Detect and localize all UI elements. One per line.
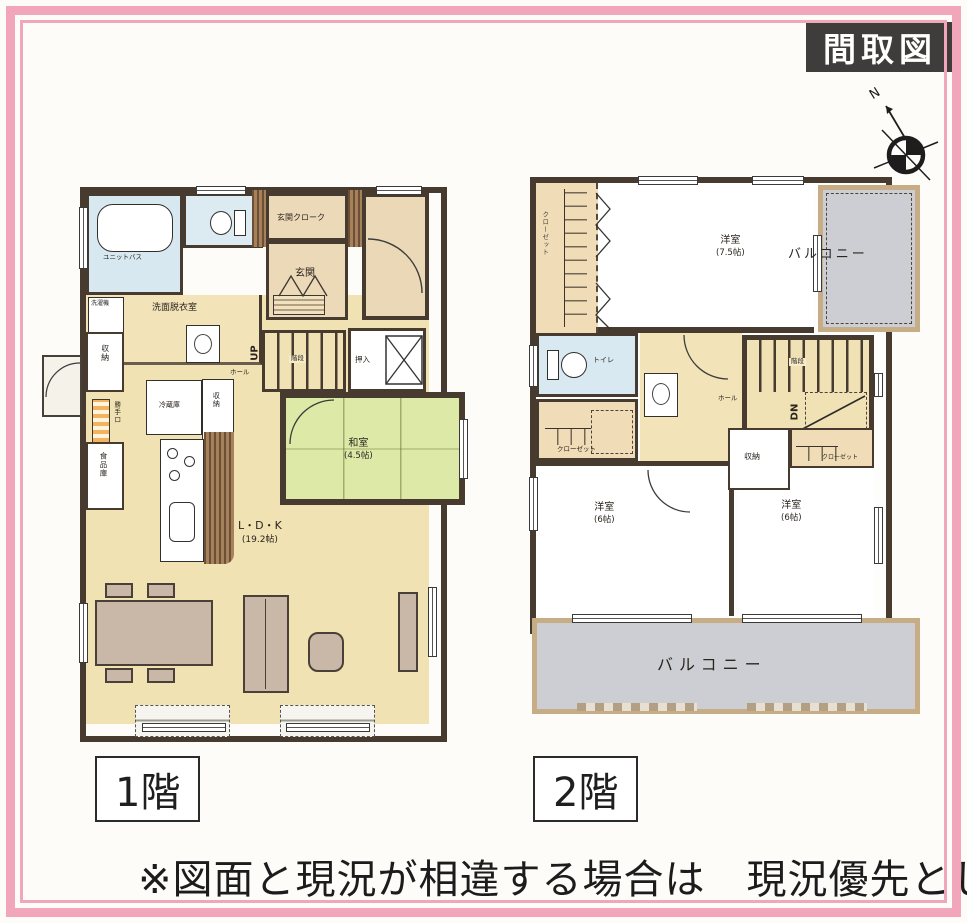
bathroom-label: ユニットバス: [103, 254, 142, 262]
closet-mid: クローゼット: [536, 399, 638, 461]
window: [572, 614, 692, 623]
wash-basin2: [644, 373, 678, 417]
kitchen-counter: [160, 439, 204, 562]
closet-mid-dashed: [591, 410, 633, 454]
hall2-door-arc: [684, 335, 728, 379]
window: [196, 186, 246, 195]
title-badge: 間取図: [806, 22, 954, 72]
side-door: [874, 373, 883, 397]
window: [286, 723, 370, 732]
window: [79, 603, 88, 663]
back-door-panel: [92, 399, 110, 443]
balcony-top-label: バルコニー: [788, 247, 868, 263]
bedroom-75-label: 洋室 (7.5帖): [716, 235, 745, 259]
ldk-size: (19.2帖): [242, 535, 278, 545]
washing-machine: 洗濯機: [88, 297, 124, 333]
window: [752, 176, 804, 185]
window: [638, 176, 698, 185]
dining-chair: [105, 583, 133, 598]
bedroom-6l: 洋室 (6帖): [536, 461, 734, 616]
cloak-cabinet-left: [252, 190, 266, 247]
disclaimer-note: ※図面と現況が相違する場合は 現況優先とし: [138, 856, 967, 904]
window: [742, 614, 862, 623]
window: [529, 345, 538, 387]
toilet2-room: トイレ: [536, 333, 638, 397]
entrance-door-arc: [368, 239, 424, 295]
balcony-railing: [577, 703, 697, 711]
dining-chair: [105, 668, 133, 683]
stove-burner: [184, 456, 195, 467]
closet-left-label: クローゼット: [540, 211, 548, 256]
window: [376, 186, 422, 195]
toilet1-bowl: [210, 211, 232, 235]
toilet2-label: トイレ: [593, 356, 614, 364]
sofa: [243, 595, 289, 693]
refrigerator: 冷蔵庫: [146, 380, 202, 435]
bedroom-6l-size: (6帖): [594, 515, 615, 525]
washitsu-size: (4.5帖): [344, 451, 373, 461]
hall2-label: ホール: [718, 395, 738, 403]
bedroom-75-size: (7.5帖): [716, 248, 745, 258]
floor1-name-box: 1階: [95, 756, 200, 822]
washitsu: 和室 (4.5帖): [280, 392, 465, 505]
terrace-step: [135, 705, 230, 737]
washitsu-label: 和室 (4.5帖): [344, 438, 373, 462]
entrance-cloak: 玄関クローク: [266, 193, 348, 241]
oshiire-x-mark: [385, 335, 423, 385]
bedroom-6l-name: 洋室: [594, 502, 614, 513]
closet-right: クローゼット: [790, 428, 874, 468]
refrigerator-label: 冷蔵庫: [159, 401, 180, 409]
bedroom-75-name: 洋室: [720, 235, 740, 246]
bedroom-6l-label: 洋室 (6帖): [594, 502, 615, 526]
washitsu-door-arc: [290, 400, 334, 444]
cloak-cabinet-right: [348, 190, 362, 247]
window: [459, 419, 468, 479]
entrance-cloak-label: 玄関クローク: [277, 213, 325, 223]
closet-mid-label: クローゼット: [557, 446, 596, 454]
storage-left-label: 収納: [100, 344, 110, 362]
kitchen-island: [204, 432, 234, 564]
dining-chair: [147, 668, 175, 683]
toilet2-tank: [547, 350, 559, 380]
balcony-top-door: [813, 235, 822, 292]
window: [529, 477, 538, 531]
pantry-label: 食品庫: [99, 452, 108, 478]
stove-burner: [167, 448, 178, 459]
floor1-plan: ユニットバス 玄関クローク 玄関 洗面脱衣室 洗濯機 ホール 収納 勝手口: [80, 187, 472, 747]
closet-right-label: クローゼット: [822, 454, 858, 461]
basin2-bowl: [652, 383, 670, 405]
closet-left: クローゼット: [536, 183, 598, 333]
washroom-label: 洗面脱衣室: [152, 303, 197, 314]
closet-left-bifold: [594, 191, 612, 331]
hall1-label: ホール: [230, 369, 250, 377]
floor2-plan: 洋室 (7.5帖) クローゼット バルコニー トイレ クローゼット ホール: [530, 177, 922, 722]
window: [79, 207, 88, 269]
bathroom: ユニットバス: [86, 193, 183, 295]
terrace-step: [280, 705, 375, 737]
back-door-landing: [42, 355, 82, 417]
toilet2-bowl: [561, 352, 587, 378]
bathtub: [97, 204, 173, 252]
window: [142, 723, 226, 732]
pantry: 食品庫: [86, 442, 124, 510]
compass-north-label: N: [867, 85, 883, 103]
stairs1-label: 階段: [289, 355, 306, 363]
balcony-railing: [747, 703, 867, 711]
dining-chair: [147, 583, 175, 598]
storage-2f-label: 収納: [744, 452, 760, 462]
bedroom-6r-name: 洋室: [781, 500, 801, 511]
tv-board: [398, 592, 418, 672]
shoe-cabinet: [273, 295, 325, 315]
bedroom-6l-door-arc: [648, 470, 690, 512]
sofa-seat-line: [265, 599, 266, 689]
oshiire: 押入: [348, 328, 426, 392]
back-door-arc: [46, 363, 80, 397]
storage-left: 収納: [86, 332, 124, 392]
entrance-step-zigzag: [277, 272, 337, 298]
closet-mid-hanger-rail: [545, 428, 591, 445]
toilet1-room: [183, 193, 263, 248]
entrance-porch: [362, 193, 429, 320]
ldk-name: L・D・K: [238, 519, 282, 532]
washing-machine-label: 洗濯機: [91, 300, 109, 307]
stairs1-up-label: UP: [250, 345, 262, 360]
coffee-table: [308, 632, 344, 672]
bedroom-6r-size: (6帖): [781, 513, 802, 523]
balcony-bottom-label: バルコニー: [657, 655, 767, 674]
ldk-label: L・D・K (19.2帖): [238, 519, 282, 546]
dining-table: [95, 600, 213, 666]
stairs1: 階段: [262, 330, 346, 392]
storage-mid-label: 収納: [212, 392, 220, 408]
back-door-label: 勝手口: [112, 401, 120, 424]
floor2-name-box: 2階: [533, 756, 638, 822]
closet-left-hanger-rail: [564, 189, 587, 327]
floorplan-scan: { "header": { "title": "間取図" }, "compass…: [0, 0, 967, 923]
stairs2-dn-label: DN: [789, 404, 801, 421]
oshiire-label: 押入: [355, 355, 370, 364]
washitsu-name: 和室: [348, 438, 368, 449]
bedroom-6r-label: 洋室 (6帖): [781, 500, 802, 524]
wash-basin1: [186, 325, 220, 363]
window: [874, 507, 883, 564]
kitchen-sink: [169, 502, 195, 542]
toilet1-tank: [234, 210, 246, 236]
window: [428, 587, 437, 657]
storage-2f: 収納: [728, 428, 790, 490]
stove-burner: [169, 470, 180, 481]
balcony-bottom: バルコニー: [532, 618, 920, 714]
entrance: 玄関: [266, 241, 348, 320]
compass-icon: N: [860, 76, 944, 184]
bedroom-6r: 洋室 (6帖): [739, 468, 874, 616]
basin-bowl: [194, 334, 212, 354]
